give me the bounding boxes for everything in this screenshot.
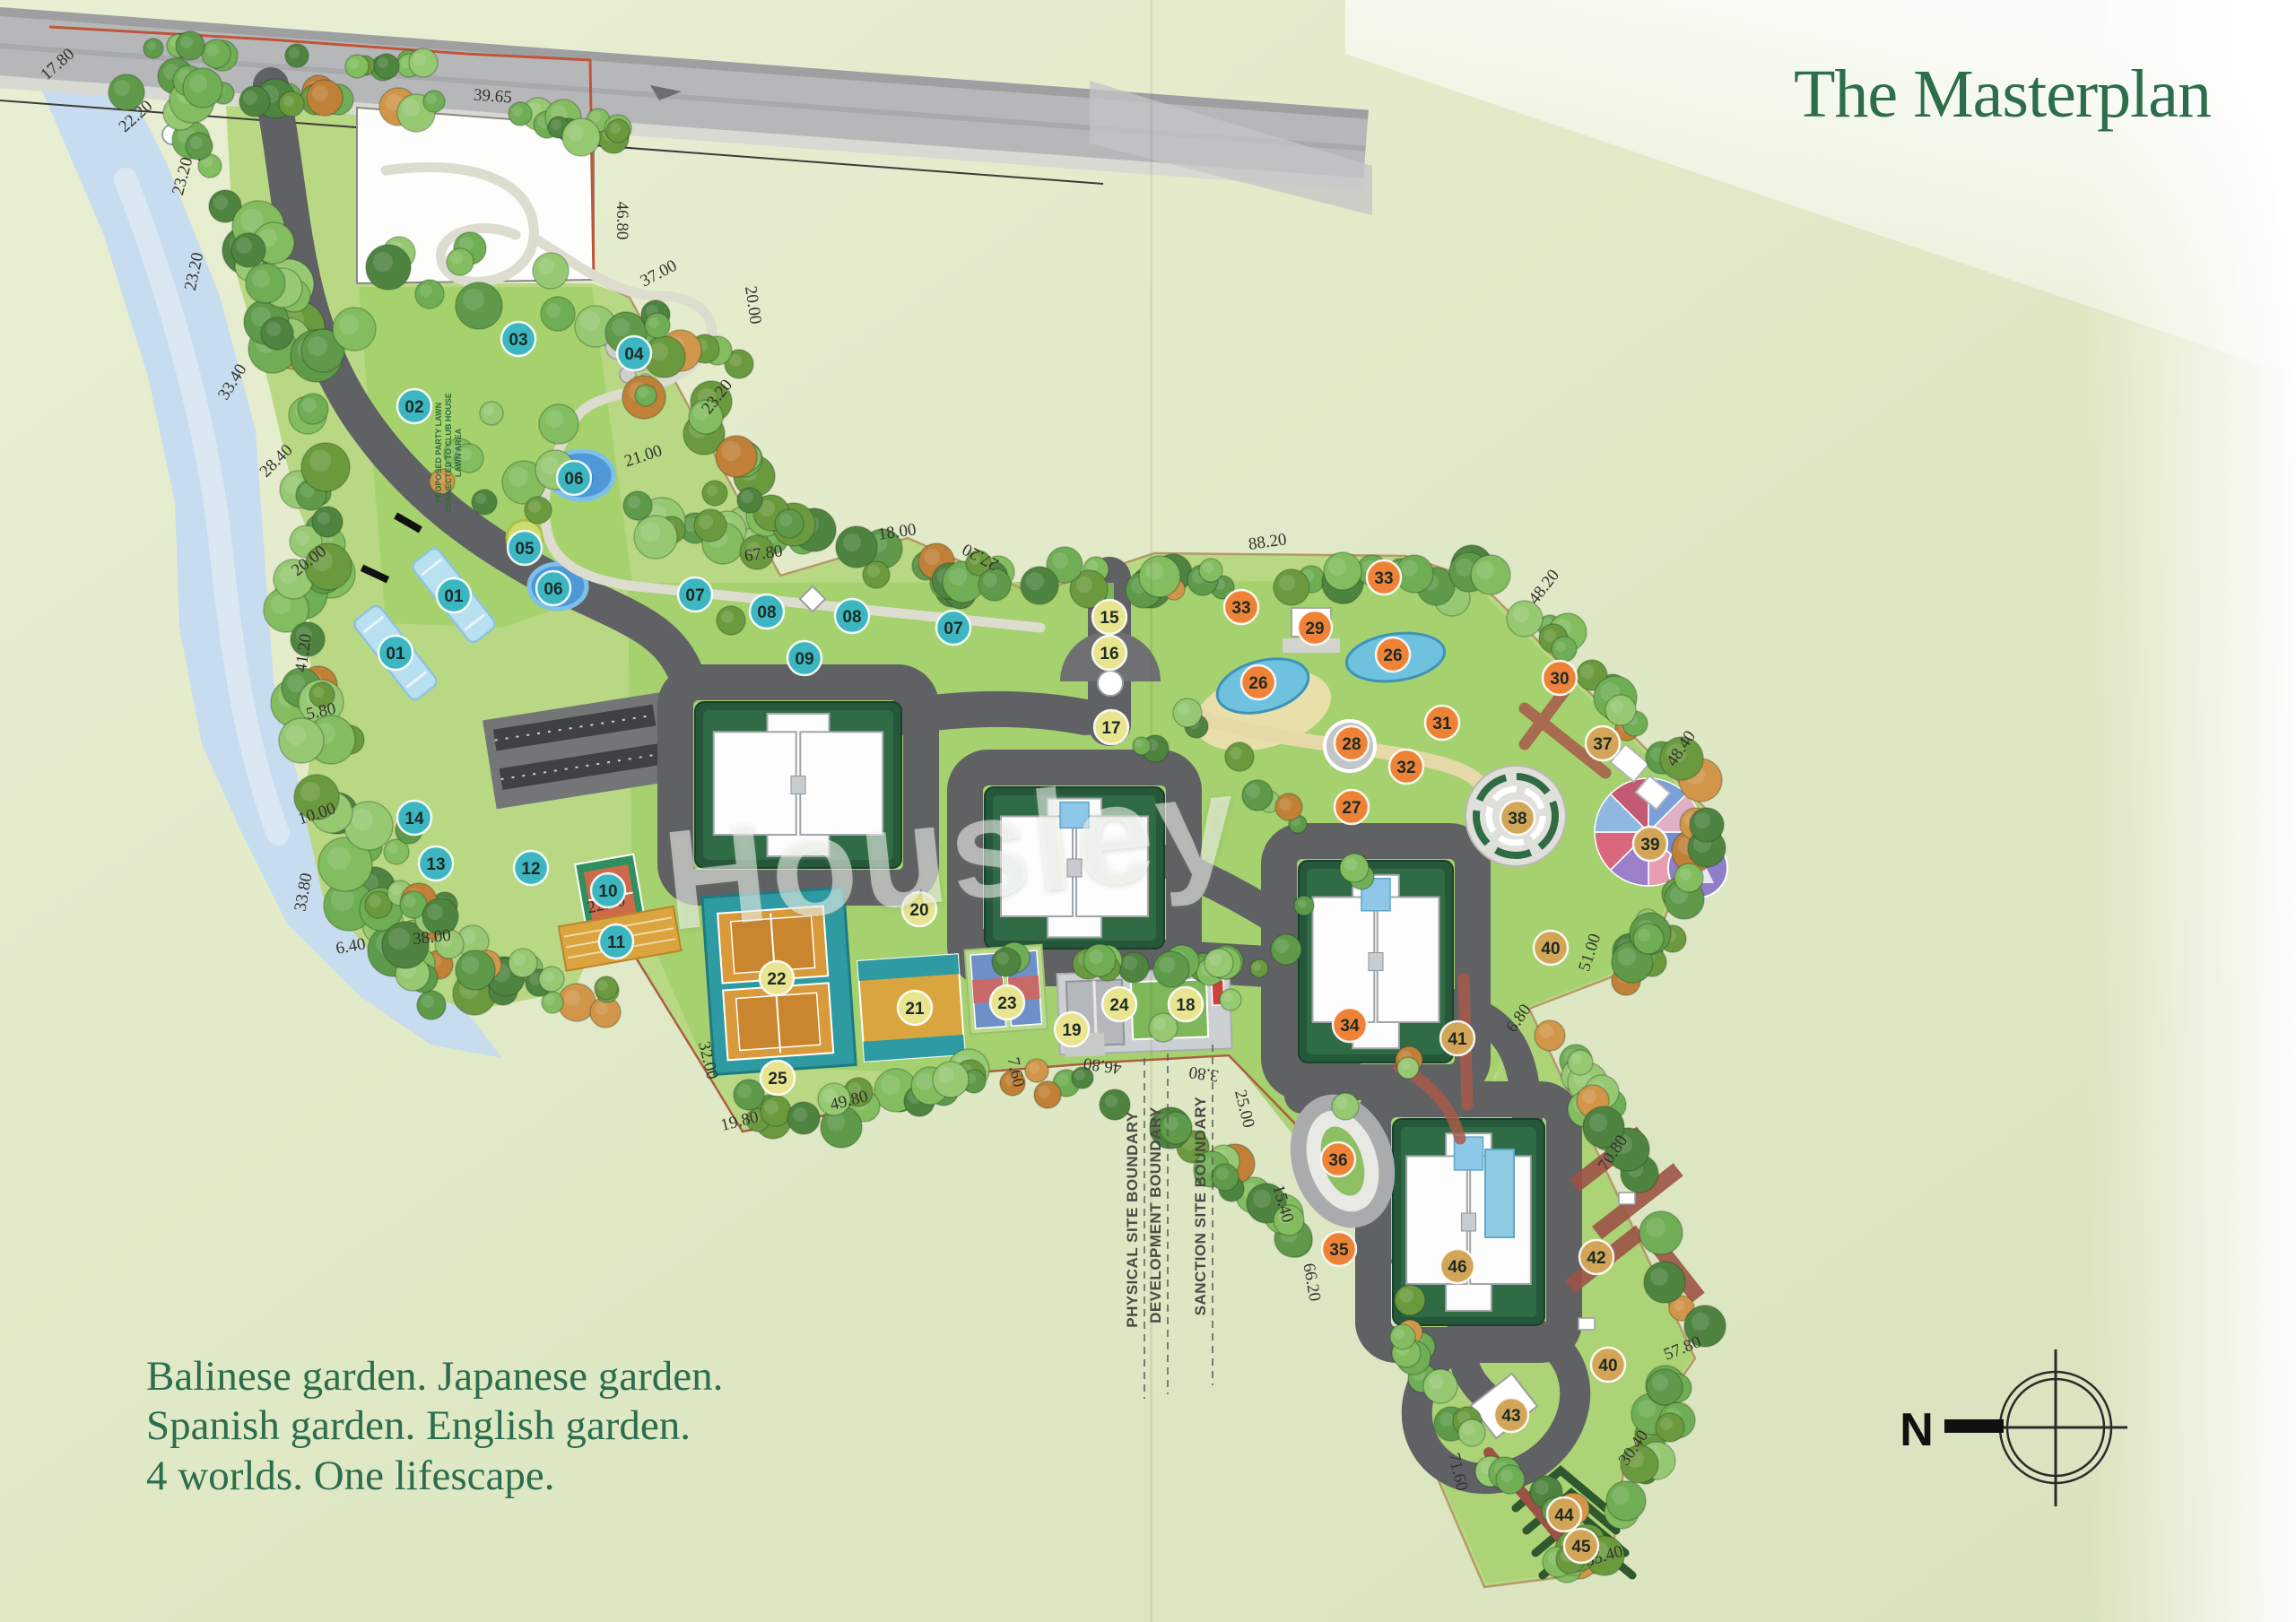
tree-highlight — [938, 1067, 954, 1083]
tree-highlight — [1401, 1061, 1410, 1070]
tree-highlight — [1650, 1268, 1668, 1286]
tree-highlight — [1057, 1073, 1069, 1086]
tree-highlight — [114, 80, 130, 96]
map-marker-28: 28 — [1335, 726, 1369, 760]
tree-highlight — [596, 1002, 608, 1015]
map-marker-29: 29 — [1298, 611, 1332, 645]
marker-number: 08 — [757, 603, 776, 622]
tree-highlight — [551, 119, 561, 130]
tree-highlight — [1335, 1097, 1348, 1109]
map-marker-24: 24 — [1102, 987, 1136, 1021]
tree-highlight — [308, 336, 327, 356]
tree-highlight — [648, 317, 659, 328]
tree-highlight — [295, 531, 309, 545]
marker-number: 02 — [404, 398, 423, 417]
tree-highlight — [707, 485, 717, 496]
tree-highlight — [1274, 939, 1289, 953]
map-marker-13: 13 — [419, 846, 453, 880]
tree-highlight — [1674, 1300, 1684, 1311]
map-marker-12: 12 — [514, 851, 548, 885]
marker-number: 14 — [404, 810, 424, 828]
marker-number: 36 — [1328, 1151, 1347, 1170]
tree-highlight — [983, 573, 997, 587]
tree-highlight — [1216, 1167, 1229, 1180]
tree-highlight — [1694, 812, 1710, 828]
map-marker-08: 08 — [750, 594, 784, 629]
marker-number: 40 — [1541, 940, 1560, 958]
marker-number: 06 — [564, 470, 583, 489]
map-marker-05: 05 — [508, 531, 542, 565]
marker-number: 07 — [685, 586, 704, 605]
tree-highlight — [590, 111, 601, 122]
tree-highlight — [1399, 1288, 1413, 1303]
dimension-label: 39.65 — [473, 86, 512, 108]
map-marker-32: 32 — [1389, 750, 1423, 784]
marker-number: 19 — [1062, 1021, 1081, 1040]
tree-highlight — [612, 318, 630, 336]
tree-highlight — [721, 441, 741, 461]
compass-north-bar — [1944, 1419, 2004, 1433]
tree-highlight — [1223, 993, 1232, 1002]
map-marker-26: 26 — [1241, 665, 1275, 699]
tree-highlight — [348, 58, 359, 69]
tree-highlight — [881, 1075, 900, 1095]
marker-number: 27 — [1342, 799, 1361, 818]
marker-number: 01 — [444, 587, 464, 606]
map-marker-11: 11 — [599, 924, 633, 958]
tree-highlight — [597, 980, 608, 991]
marker-number: 31 — [1432, 715, 1452, 733]
tree-highlight — [1679, 868, 1692, 880]
tree-highlight — [286, 725, 306, 745]
marker-number: 25 — [768, 1070, 787, 1089]
marker-number: 44 — [1554, 1506, 1574, 1525]
marker-number: 23 — [997, 994, 1016, 1013]
map-marker-34: 34 — [1333, 1008, 1367, 1042]
tree-highlight — [1652, 1375, 1668, 1391]
marker-number: 07 — [944, 620, 962, 638]
marker-number: 46 — [1448, 1258, 1466, 1277]
map-marker-08: 08 — [835, 599, 869, 633]
tree-highlight — [413, 53, 426, 65]
tree-highlight — [638, 387, 648, 398]
tree-highlight — [283, 96, 294, 107]
site-note: PROPOSED PARTY LAWN — [434, 403, 443, 503]
tree-highlight — [1344, 858, 1357, 871]
marker-number: 11 — [607, 933, 626, 952]
tree-highlight — [1123, 956, 1137, 970]
tree-highlight — [1209, 953, 1222, 966]
marker-number: 10 — [598, 882, 617, 901]
map-marker-02: 02 — [397, 389, 431, 423]
tree-highlight — [1298, 899, 1307, 908]
tree-highlight — [580, 311, 600, 331]
tree-highlight — [147, 41, 156, 50]
map-marker-25: 25 — [761, 1061, 795, 1095]
tree-highlight — [309, 450, 331, 472]
marker-number: 18 — [1176, 996, 1195, 1015]
tree-highlight — [1500, 1470, 1513, 1482]
marker-number: 45 — [1571, 1538, 1591, 1557]
marker-number: 37 — [1593, 735, 1612, 754]
tree-highlight — [640, 522, 660, 542]
tree-highlight — [1203, 562, 1213, 573]
tree-highlight — [420, 284, 432, 297]
tree-highlight — [1582, 1089, 1596, 1104]
tree-highlight — [1589, 1114, 1607, 1132]
compass-north-label: N — [1900, 1404, 1934, 1456]
map-marker-27: 27 — [1335, 790, 1369, 824]
tree-highlight — [206, 44, 219, 56]
map-marker-38: 38 — [1500, 801, 1535, 835]
tree-highlight — [843, 533, 861, 551]
marker-number: 42 — [1587, 1249, 1605, 1268]
map-marker-41: 41 — [1440, 1021, 1474, 1055]
tree-highlight — [1692, 1313, 1709, 1331]
tree-highlight — [1087, 560, 1098, 571]
marker-number: 17 — [1101, 719, 1120, 738]
tree-highlight — [426, 93, 437, 104]
marker-number: 16 — [1100, 645, 1118, 664]
tree-highlight — [1135, 739, 1144, 748]
tree-highlight — [867, 565, 880, 577]
tree-highlight — [402, 99, 420, 117]
map-marker-45: 45 — [1564, 1529, 1598, 1563]
site-note: LAWN AREA — [454, 428, 463, 477]
tree-highlight — [1646, 1218, 1665, 1237]
marker-number: 35 — [1329, 1241, 1349, 1260]
map-marker-04: 04 — [617, 336, 651, 370]
dimension-label: 46.80 — [613, 202, 631, 240]
map-marker-06: 06 — [536, 571, 570, 605]
marker-number: 34 — [1340, 1017, 1360, 1036]
marker-number: 24 — [1109, 996, 1129, 1015]
tree-highlight — [721, 611, 734, 623]
tree-highlight — [1544, 629, 1556, 642]
tree-highlight — [568, 125, 584, 141]
map-marker-17: 17 — [1094, 710, 1128, 744]
boundary-label: PHYSICAL SITE BOUNDARY — [1124, 1111, 1141, 1328]
tree-highlight — [1026, 572, 1044, 590]
tree-highlight — [949, 568, 967, 585]
masterplan-page: 17.8022.2023.2023.2033.4028.4020.0041.20… — [0, 0, 2296, 1622]
map-marker-10: 10 — [591, 873, 625, 907]
tree-highlight — [924, 549, 940, 565]
map-marker-42: 42 — [1579, 1240, 1613, 1274]
tree-highlight — [1462, 1423, 1474, 1436]
tree-highlight — [1279, 575, 1295, 591]
tree-highlight — [1052, 552, 1068, 568]
tree-highlight — [1555, 641, 1566, 652]
tree-highlight — [1394, 1329, 1405, 1340]
tree-highlight — [916, 1072, 934, 1090]
tree-highlight — [313, 687, 324, 698]
tree-highlight — [1328, 558, 1346, 576]
tree-highlight — [1279, 798, 1291, 811]
map-marker-35: 35 — [1322, 1232, 1356, 1266]
tree-highlight — [764, 1100, 778, 1115]
map-marker-09: 09 — [787, 641, 822, 675]
tagline-line-3: 4 worlds. One lifescape. — [146, 1452, 723, 1501]
tree-highlight — [564, 990, 580, 1006]
tree-highlight — [387, 843, 398, 854]
tree-highlight — [327, 846, 351, 870]
marker-number: 03 — [509, 331, 527, 350]
tree-highlight — [252, 270, 270, 288]
tree-highlight — [352, 809, 373, 830]
tree-highlight — [545, 410, 563, 428]
tree-highlight — [1089, 950, 1103, 964]
tree-highlight — [422, 995, 434, 1008]
marker-number: 22 — [767, 970, 786, 989]
tree-highlight — [538, 258, 554, 274]
tree-highlight — [289, 48, 300, 58]
tree-highlight — [1159, 957, 1175, 973]
tagline: Balinese garden. Japanese garden. Spanis… — [146, 1352, 723, 1501]
tree-highlight — [779, 514, 792, 526]
tagline-line-2: Spanish garden. English garden. — [146, 1401, 723, 1451]
marker-number: 06 — [544, 580, 562, 599]
marker-number: 41 — [1448, 1030, 1467, 1049]
map-marker-33: 33 — [1224, 590, 1258, 624]
tree-highlight — [1580, 664, 1595, 679]
map-marker-23: 23 — [990, 985, 1024, 1019]
marker-number: 08 — [842, 608, 861, 627]
tree-highlight — [302, 398, 317, 412]
map-marker-33: 33 — [1367, 560, 1401, 594]
map-marker-30: 30 — [1543, 661, 1577, 695]
tree-highlight — [369, 895, 381, 907]
tree-highlight — [1638, 929, 1650, 941]
tree-highlight — [483, 405, 494, 416]
boundary-label: SANCTION SITE BOUNDARY — [1192, 1097, 1209, 1316]
marker-number: 26 — [1383, 646, 1402, 665]
tree-highlight — [213, 195, 228, 210]
tree-highlight — [266, 322, 281, 336]
tree-highlight — [1145, 562, 1163, 580]
dimension-label: 38.00 — [412, 926, 452, 949]
tree-highlight — [300, 782, 320, 802]
tree-highlight — [610, 123, 621, 134]
tree-highlight — [650, 343, 668, 360]
tree-highlight — [1253, 1190, 1271, 1208]
marker-number: 29 — [1305, 620, 1324, 638]
tree-highlight — [544, 971, 554, 982]
tree-highlight — [1618, 948, 1636, 966]
marker-number: 43 — [1501, 1407, 1520, 1426]
tree-highlight — [1038, 1086, 1050, 1098]
map-marker-16: 16 — [1092, 636, 1126, 670]
page-title: The Masterplan — [1709, 56, 2211, 134]
tree-highlight — [312, 85, 328, 101]
map-marker-19: 19 — [1055, 1012, 1089, 1046]
tree-highlight — [427, 904, 443, 920]
map-marker-21: 21 — [898, 991, 932, 1025]
tree-highlight — [378, 57, 388, 68]
marker-number: 38 — [1508, 810, 1526, 828]
tree-highlight — [190, 136, 203, 149]
marker-number: 15 — [1100, 609, 1119, 628]
map-marker-01: 01 — [437, 578, 471, 612]
tree-highlight — [544, 994, 555, 1005]
tree-highlight — [391, 884, 402, 895]
map-marker-26: 26 — [1376, 638, 1410, 672]
tree-highlight — [1612, 1487, 1630, 1505]
tree-highlight — [461, 956, 479, 974]
tree-highlight — [628, 496, 640, 508]
map-marker-06: 06 — [557, 461, 591, 495]
marker-number: 13 — [426, 855, 445, 874]
tree-highlight — [541, 456, 559, 474]
tree-highlight — [1660, 1418, 1673, 1430]
tree-highlight — [1252, 962, 1261, 971]
marker-number: 26 — [1248, 674, 1267, 693]
map-marker-03: 03 — [501, 322, 535, 356]
tree-highlight — [793, 1107, 807, 1122]
tree-highlight — [317, 512, 330, 525]
tree-highlight — [1638, 1400, 1656, 1418]
marker-number: 32 — [1396, 759, 1415, 777]
marker-number: 30 — [1550, 670, 1569, 689]
tree-highlight — [528, 500, 541, 513]
tree-highlight — [463, 289, 484, 310]
tree-highlight — [388, 928, 410, 950]
tree-highlight — [236, 238, 252, 254]
map-marker-44: 44 — [1547, 1497, 1581, 1531]
tree-highlight — [1153, 1018, 1166, 1030]
tree-highlight — [546, 303, 561, 317]
tree-highlight — [475, 493, 486, 504]
marker-number: 33 — [1374, 569, 1393, 588]
tree-highlight — [512, 106, 523, 117]
map-marker-40: 40 — [1591, 1348, 1625, 1382]
map-marker-22: 22 — [760, 961, 794, 995]
map-marker-37: 37 — [1586, 726, 1620, 760]
tree-highlight — [339, 315, 359, 334]
tree-highlight — [243, 91, 257, 105]
tree-highlight — [373, 252, 393, 272]
tree-highlight — [509, 467, 528, 487]
marker-number: 05 — [515, 540, 535, 559]
tree-highlight — [1029, 1063, 1039, 1073]
map-marker-18: 18 — [1169, 987, 1203, 1021]
marker-number: 04 — [624, 345, 644, 364]
marker-number: 33 — [1231, 599, 1250, 618]
marker-number: 09 — [795, 650, 813, 669]
tree-highlight — [1178, 703, 1190, 716]
marker-number: 40 — [1598, 1357, 1617, 1375]
tree-highlight — [1164, 1116, 1178, 1131]
marker-number: 28 — [1342, 735, 1361, 754]
marker-number: 21 — [905, 1000, 925, 1019]
map-marker-40: 40 — [1534, 931, 1568, 965]
map-marker-43: 43 — [1494, 1398, 1528, 1432]
marker-number: 39 — [1640, 836, 1659, 854]
map-marker-07: 07 — [936, 611, 970, 645]
tree-highlight — [1105, 1095, 1118, 1107]
tree-highlight — [1246, 784, 1260, 798]
tree-highlight — [1571, 1054, 1582, 1064]
tree-highlight — [1611, 700, 1623, 713]
tree-highlight — [1539, 1024, 1553, 1038]
tree-highlight — [1402, 560, 1418, 577]
marker-number: 12 — [521, 860, 540, 879]
map-marker-07: 07 — [678, 577, 712, 612]
tree-highlight — [189, 74, 207, 92]
tree-highlight — [180, 36, 193, 48]
map-marker-36: 36 — [1321, 1142, 1355, 1176]
tree-highlight — [450, 252, 463, 265]
tree-highlight — [699, 515, 713, 529]
tree-highlight — [741, 490, 753, 503]
tree-highlight — [737, 1084, 752, 1098]
tree-highlight — [1439, 1412, 1454, 1427]
site-note: CONNECTED TO CLUB HOUSE — [444, 393, 453, 513]
map-marker-01: 01 — [378, 636, 413, 670]
marker-number: 01 — [386, 645, 405, 664]
tree-highlight — [404, 895, 416, 907]
tree-highlight — [1476, 561, 1494, 579]
tree-highlight — [996, 952, 1009, 965]
tree-highlight — [1076, 577, 1092, 593]
tagline-line-1: Balinese garden. Japanese garden. — [146, 1352, 723, 1401]
tree-highlight — [1429, 1375, 1443, 1389]
map-marker-31: 31 — [1425, 706, 1459, 740]
map-marker-14: 14 — [397, 801, 431, 835]
map-marker-39: 39 — [1633, 827, 1667, 861]
tree-highlight — [513, 953, 526, 966]
map-marker-15: 15 — [1092, 600, 1126, 634]
map-marker-46: 46 — [1440, 1249, 1474, 1283]
tree-highlight — [1513, 606, 1529, 622]
tree-highlight — [1535, 1480, 1549, 1495]
